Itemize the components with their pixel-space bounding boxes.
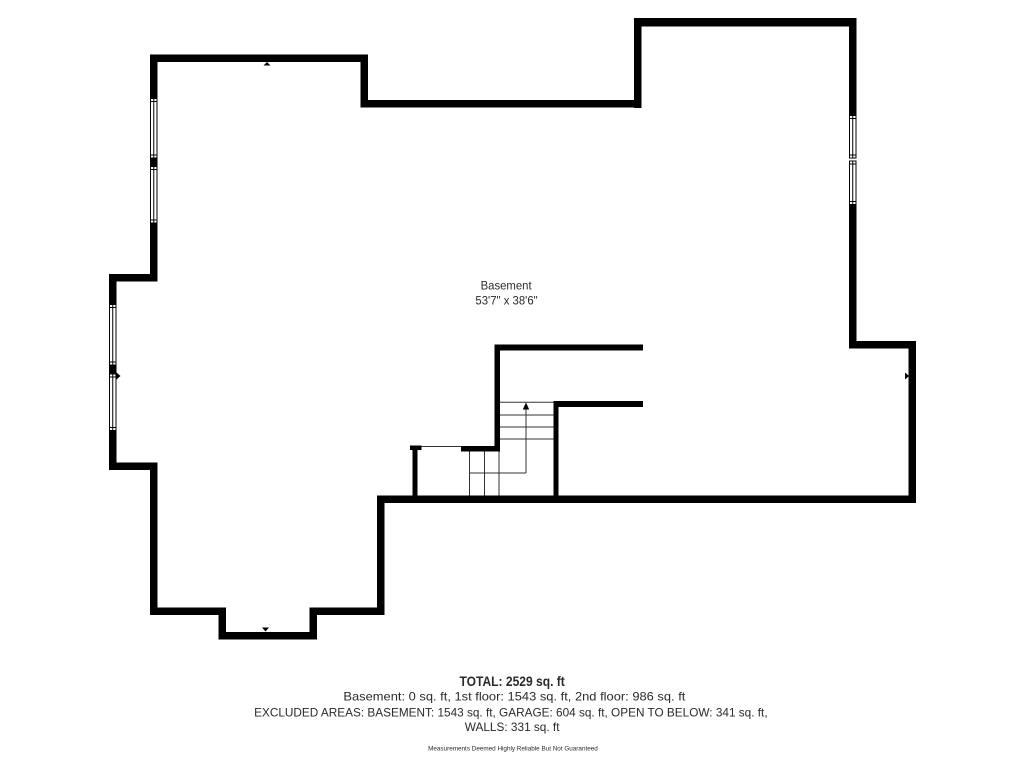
svg-text:WALLS: 331 sq. ft: WALLS: 331 sq. ft	[465, 721, 560, 734]
svg-text:Basement: 0 sq. ft, 1st floor:: Basement: 0 sq. ft, 1st floor: 1543 sq. …	[343, 691, 686, 704]
svg-text:53'7" x 38'6": 53'7" x 38'6"	[475, 294, 537, 308]
svg-text:TOTAL: 2529 sq. ft: TOTAL: 2529 sq. ft	[460, 674, 566, 690]
svg-text:EXCLUDED AREAS: BASEMENT: 1543: EXCLUDED AREAS: BASEMENT: 1543 sq. ft, G…	[254, 706, 768, 719]
svg-text:Basement: Basement	[481, 279, 533, 293]
svg-text:Measurements Deemed Highly Rel: Measurements Deemed Highly Reliable But …	[428, 746, 598, 753]
